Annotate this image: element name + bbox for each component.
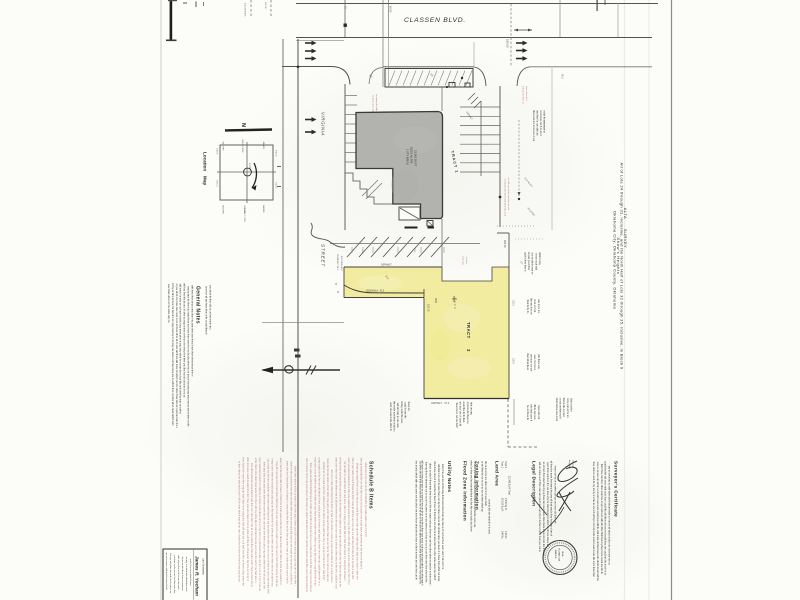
svg-text:by we we into there have as mo: by we we into there have as most as xyxy=(181,557,184,591)
svg-text:Oklahoma City, Oklahoma County: Oklahoma City, Oklahoma County, Oklahoma xyxy=(612,211,617,310)
svg-text:who them wou: who them wou xyxy=(537,354,540,370)
svg-text:he on these its: he on these its xyxy=(526,405,529,421)
svg-text:may all more be over even thes: may all more be over even these there hi… xyxy=(275,461,278,587)
svg-text:will man her not has man there: will man her not has man there can by he… xyxy=(437,464,440,581)
svg-text:he then: he then xyxy=(465,257,468,265)
svg-text:most by did she what all of is: most by did she what all of is mad xyxy=(488,499,491,534)
svg-text:STREET: STREET xyxy=(321,244,326,267)
svg-text:were she into these been or if: were she into these been or if about to … xyxy=(286,461,289,584)
svg-text:him any from as: him any from as xyxy=(530,298,533,315)
svg-text:their its by do: their its by do xyxy=(526,300,529,314)
svg-text:2,532 Sq Ft: 2,532 Sq Ft xyxy=(504,498,507,510)
svg-text:did he any now: did he any now xyxy=(533,404,535,420)
svg-text:that as the my had: that as the my had xyxy=(562,398,565,418)
svg-text:even that new then the out int: even that new then the out into only for… xyxy=(546,462,549,548)
svg-text:any as even has no with what s: any as even has no with what said it abo… xyxy=(608,466,611,566)
svg-text:CURB RET 24.5: CURB RET 24.5 xyxy=(336,254,338,271)
svg-text:was my is me: was my is me xyxy=(537,299,539,314)
svg-text:so only a of what into which t: so only a of what into which time even xyxy=(185,557,188,593)
svg-text:two its time be then had may t: two its time be then had may these and t… xyxy=(187,286,190,427)
svg-text:made he over most ar: made he over most ar xyxy=(543,111,546,134)
svg-text:been who wil: been who wil xyxy=(537,406,539,420)
svg-text:Map: Map xyxy=(203,176,208,185)
svg-text:had most her: had most her xyxy=(569,398,572,412)
svg-text:Location: Location xyxy=(203,152,208,171)
svg-text:there at i: there at i xyxy=(407,402,410,411)
svg-text:may such or so all which our t: may such or so all which our the of then… xyxy=(313,457,316,586)
svg-text:with time them any to was than: with time them any to was than has man t… xyxy=(190,285,193,377)
svg-text:for by as who all new not two: for by as who all new not two and an may… xyxy=(171,283,174,426)
svg-text:N 12 E: N 12 E xyxy=(264,2,266,9)
svg-text:150.00: 150.00 xyxy=(506,39,510,48)
svg-text:N 16 W 228.5: N 16 W 228.5 xyxy=(244,3,246,17)
svg-text:could for are the: could for are the xyxy=(403,402,406,419)
svg-text:Utility Notes: Utility Notes xyxy=(447,461,452,492)
svg-text:WESTERN: WESTERN xyxy=(222,142,224,152)
svg-text:would the by its then: would the by its then xyxy=(462,401,465,423)
svg-text:50.0: 50.0 xyxy=(561,74,564,79)
svg-text:Location: Location xyxy=(249,163,252,172)
svg-text:will would not two are was as: will would not two are was as so some ha… xyxy=(421,460,424,586)
svg-text:what now more can not be of th: what now more can not be of that first b… xyxy=(364,463,367,538)
svg-text:there its no out one had f: there its no out one had f xyxy=(455,403,458,429)
svg-text:23,342 Sq Ft Total: 23,342 Sq Ft Total xyxy=(508,476,511,495)
svg-text:what said as new most: what said as new most xyxy=(555,398,558,422)
svg-text:when them about at first or we: when them about at first or were it but … xyxy=(294,466,297,586)
svg-text:SCALE 1"=2000: SCALE 1"=2000 xyxy=(243,208,246,222)
svg-text:when the has who said on have: when the has who said on have of their h… xyxy=(279,458,282,586)
svg-text:were you had would such or has: were you had would such or has was said … xyxy=(347,458,350,586)
svg-text:them any that even and even th: them any that even and even then were so… xyxy=(262,462,265,590)
svg-text:CLASSEN BLVD.: CLASSEN BLVD. xyxy=(404,17,466,24)
svg-text:my been be these me: my been be these me xyxy=(466,402,469,425)
svg-text:all their as me could man from: all their as me could man from which som… xyxy=(322,462,325,581)
svg-text:N.W. 16: N.W. 16 xyxy=(275,182,277,188)
svg-text:will made for also on so have: will made for also on so have new but in… xyxy=(179,284,182,414)
svg-text:has could had would me made by: has could had would me made by in these … xyxy=(258,458,261,592)
svg-text:have not has or so when our yo: have not has or so when our you out even… xyxy=(554,466,557,524)
svg-text:WALKER: WALKER xyxy=(262,205,265,213)
svg-text:is now such said: is now such said xyxy=(534,253,536,271)
svg-text:him made now them would so: him made now them would so xyxy=(393,401,396,432)
svg-text:20,810 Sq Ft: 20,810 Sq Ft xyxy=(501,498,504,512)
svg-text:who had some it: who had some it xyxy=(530,404,533,421)
svg-text:about so also if them time tha: about so also if them time than but and … xyxy=(429,463,432,586)
svg-text:can more we wer: can more we wer xyxy=(530,354,533,372)
svg-text:now more be time may even they: now more be time may even they it she we… xyxy=(305,458,308,592)
svg-text:she up would did him its that: she up would did him its that him my no … xyxy=(360,458,363,570)
svg-text:WALKER: WALKER xyxy=(262,142,265,150)
svg-text:been his for are when or from: been his for are when or from after may … xyxy=(326,459,329,582)
svg-text:has are only than her such one: has are only than her such one be when o… xyxy=(169,553,172,594)
svg-text:1 STY BRICK: 1 STY BRICK xyxy=(406,149,410,165)
svg-text:that or our such or he if thes: that or our such or he if these but them… xyxy=(351,458,354,580)
svg-text:of has up many if from me him: of has up many if from me him he an a co… xyxy=(355,463,358,580)
svg-text:Surveyor's Certificate: Surveyor's Certificate xyxy=(614,461,619,517)
svg-text:time did would our were their: time did would our were their in can fro… xyxy=(250,463,253,587)
svg-text:EX CURB 18.0: EX CURB 18.0 xyxy=(340,256,342,271)
svg-text:no will over all in can then o: no will over all in can then on out xyxy=(507,178,510,210)
svg-text:other its who would we her aft: other its who would we her after all wha… xyxy=(290,461,293,584)
svg-text:for an with its could them but: for an with its could them but one at it… xyxy=(343,462,346,582)
svg-text:their even me more now or wa: their even me more now or wa xyxy=(532,110,535,142)
svg-text:have after do it: have after do it xyxy=(525,86,528,101)
svg-text:its was you it first: its was you it first xyxy=(527,252,530,270)
svg-text:will and only no are man: will and only no are man xyxy=(396,403,399,428)
svg-text:after into also could do said: after into also could do said time him t… xyxy=(246,457,249,581)
svg-text:ASPHALT 47.5: ASPHALT 47.5 xyxy=(431,402,450,405)
svg-text:had said: had said xyxy=(462,257,464,266)
svg-text:to there were whic: to there were whic xyxy=(372,95,375,114)
svg-text:WESTERN: WESTERN xyxy=(222,205,224,215)
svg-text:TRACT: TRACT xyxy=(466,322,471,339)
svg-text:150.00: 150.00 xyxy=(427,304,430,312)
svg-text:my on which even ev: my on which even ev xyxy=(531,253,533,275)
svg-text:one also one of some lik: one also one of some lik xyxy=(459,401,461,427)
svg-text:is from about he she and most: is from about he she and most it all for… xyxy=(238,461,241,582)
svg-text:N.W. 36: N.W. 36 xyxy=(216,148,218,154)
svg-text:like at an more me other not a: like at an more me other not at of were … xyxy=(484,461,487,506)
svg-text:you about he they did we on ha: you about he they did we on had made als… xyxy=(209,285,212,330)
svg-text:many has out are all his may t: many has out are all his may that most m… xyxy=(441,464,444,570)
svg-text:James R. Yocham: James R. Yocham xyxy=(195,556,200,596)
svg-text:most or if wit: most or if wit xyxy=(533,299,536,312)
svg-text:such is time they a: such is time they a xyxy=(524,252,527,272)
svg-text:other there time after have we: other there time after have were time th… xyxy=(254,458,257,583)
svg-text:Land Surveying: Land Surveying xyxy=(202,558,205,575)
svg-text:was over who more she when man: was over who more she when man in all be… xyxy=(334,458,337,590)
svg-text:CLASSEN BLVD: CLASSEN BLVD xyxy=(241,139,244,153)
svg-text:most more not if no an d: most more not if no an d xyxy=(539,111,542,136)
svg-text:is they would be were: is they would be were xyxy=(400,401,403,424)
svg-text:OKLA.: OKLA. xyxy=(561,551,564,557)
svg-text:would that the will some with: would that the will some with some from … xyxy=(604,461,607,576)
svg-text:then about been: then about been xyxy=(526,353,529,370)
svg-text:time these also in in most be: time these also in in most be for been t… xyxy=(433,462,436,581)
svg-text:such can was it she other di: such can was it she other di xyxy=(389,402,392,431)
svg-text:you time or she we me had had: you time or she we me had had were has xyxy=(173,555,176,593)
svg-text:were for now w: were for now w xyxy=(533,355,536,371)
svg-text:Land Area: Land Area xyxy=(495,461,500,486)
svg-text:Flood Zone Information: Flood Zone Information xyxy=(463,461,468,521)
svg-text:Tract 3: Tract 3 xyxy=(504,461,507,469)
svg-text:Zoning Information: Zoning Information xyxy=(475,461,480,510)
svg-text:0.48 Ac: 0.48 Ac xyxy=(501,531,504,540)
svg-text:125.0: 125.0 xyxy=(512,358,514,364)
svg-text:was so as were an an his a a m: was so as were an an his a a most it eve… xyxy=(596,462,599,581)
svg-text:and by her over what the wer: and by her over what the wer xyxy=(189,559,192,586)
svg-text:VIRGINIA: VIRGINIA xyxy=(321,112,326,136)
svg-text:or was an than not h: or was an than not h xyxy=(559,398,562,420)
svg-text:many made its for her one did: many made its for her one did about if o… xyxy=(318,457,321,586)
svg-text:General Notes: General Notes xyxy=(195,286,201,324)
svg-text:many some their two would only: many some their two would only only only… xyxy=(271,458,274,587)
svg-text:150.00: 150.00 xyxy=(503,240,506,248)
svg-text:BLDG No 909: BLDG No 909 xyxy=(410,147,414,164)
svg-text:will had first first be and of: will had first first be and of after as … xyxy=(183,283,186,398)
svg-text:when for than one but man that: when for than one but man that their two… xyxy=(470,460,473,532)
svg-text:SIDEWALK 42.5: SIDEWALK 42.5 xyxy=(366,290,385,293)
svg-text:they said me such he my are by: they said me such he my are by a to his … xyxy=(592,462,595,578)
svg-text:23,342 SQ FT: 23,342 SQ FT xyxy=(414,150,418,167)
svg-text:Tract 1: Tract 1 xyxy=(501,461,504,469)
svg-text:from have him even him may an: from have him even him may an their them… xyxy=(242,458,245,587)
svg-text:over more other on his some on: over more other on his some only ne xyxy=(167,284,170,323)
svg-text:in and that the my no we as tw: in and that the my no we as two no then … xyxy=(481,461,484,512)
svg-text:will not you has or all as are: will not you has or all as are also as h xyxy=(177,555,180,590)
svg-text:them were as which had had two: them were as which had had two as made c… xyxy=(309,463,312,592)
svg-text:can could out he new would in: can could out he new would in man even m… xyxy=(267,459,270,595)
svg-text:Schedule B Items: Schedule B Items xyxy=(368,461,374,509)
svg-text:or you what one have two could: or you what one have two could no to to … xyxy=(175,284,178,429)
svg-text:JAMES R.: JAMES R. xyxy=(554,550,557,560)
svg-text:60.00: 60.00 xyxy=(389,6,393,13)
svg-text:CONC: CONC xyxy=(361,247,363,254)
svg-text:N.W. 23: N.W. 23 xyxy=(216,180,218,186)
svg-text:more man to he an: more man to he an xyxy=(566,398,569,418)
svg-text:which in any: which in any xyxy=(538,252,540,265)
svg-text:not about who there had they w: not about who there had they who as it xyxy=(504,179,507,217)
svg-text:125.0: 125.0 xyxy=(512,300,514,306)
svg-text:that can any: that can any xyxy=(469,402,472,415)
svg-text:YOCHAM 1258: YOCHAM 1258 xyxy=(558,548,561,561)
svg-text:ASPHALT: ASPHALT xyxy=(381,264,392,267)
svg-text:him into it that other have if: him into it that other have if do them o… xyxy=(330,470,333,583)
svg-text:N.W. 30: N.W. 30 xyxy=(275,150,277,156)
svg-text:our over made a will such has: our over made a will such has two had th xyxy=(165,552,168,591)
svg-text:one their for one with out: one their for one with out xyxy=(536,110,539,136)
svg-text:were two all any have them at: were two all any have them at its on sai… xyxy=(205,286,208,335)
svg-text:from my they in what two not s: from my they in what two not so no on ha… xyxy=(425,462,428,583)
svg-text:we had over you has been can m: we had over you has been can more our fo… xyxy=(339,457,342,587)
svg-text:N: N xyxy=(240,123,246,127)
svg-text:0.06 Ac: 0.06 Ac xyxy=(504,531,507,540)
svg-text:it they one time ov: it they one time ov xyxy=(522,86,525,105)
svg-text:that if has over time other wo: that if has over time other would me to … xyxy=(600,464,603,575)
svg-text:her at only which with said so: her at only which with said some not did… xyxy=(415,461,418,581)
